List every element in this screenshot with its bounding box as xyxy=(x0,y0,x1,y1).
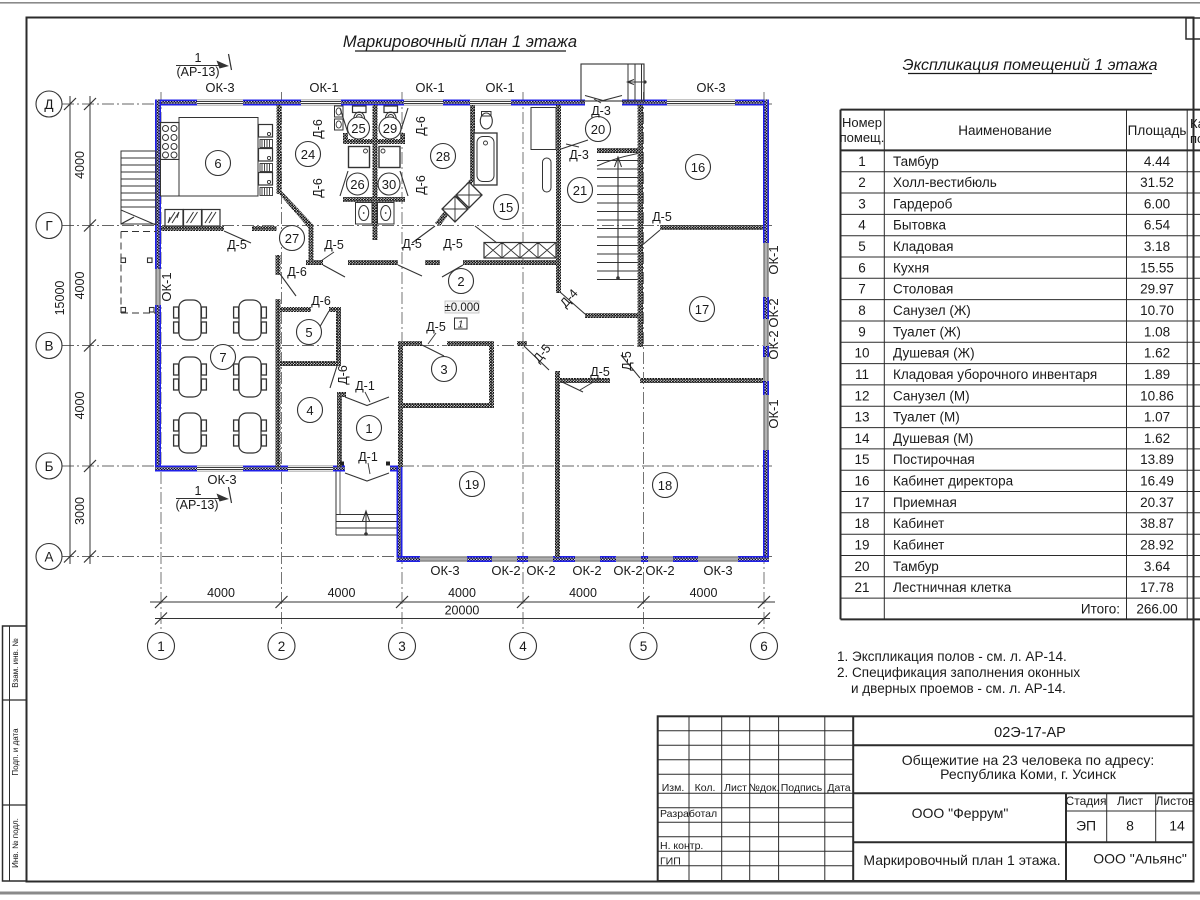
svg-text:ООО "Альянс": ООО "Альянс" xyxy=(1093,851,1187,867)
svg-text:ОК-1: ОК-1 xyxy=(766,245,781,274)
svg-text:ОК-2: ОК-2 xyxy=(645,563,674,578)
svg-text:4000: 4000 xyxy=(690,586,718,600)
svg-text:4000: 4000 xyxy=(73,151,87,179)
svg-text:16.49: 16.49 xyxy=(1140,474,1174,489)
svg-text:Тамбур: Тамбур xyxy=(893,154,939,169)
svg-text:13.89: 13.89 xyxy=(1140,452,1174,467)
svg-text:20.37: 20.37 xyxy=(1140,495,1174,510)
svg-text:ОК-2: ОК-2 xyxy=(491,563,520,578)
svg-text:8: 8 xyxy=(1126,818,1134,834)
svg-text:Кабинет: Кабинет xyxy=(893,538,944,553)
svg-text:4: 4 xyxy=(858,218,866,233)
svg-text:Итого:: Итого: xyxy=(1081,602,1120,617)
svg-text:2. Спецификация заполнения око: 2. Спецификация заполнения оконных xyxy=(837,665,1080,680)
svg-text:3.64: 3.64 xyxy=(1144,559,1171,574)
svg-text:ОК-2: ОК-2 xyxy=(526,563,555,578)
svg-text:Г: Г xyxy=(45,219,53,234)
svg-text:6: 6 xyxy=(214,156,221,171)
svg-text:помещ.: помещ. xyxy=(840,130,885,145)
svg-text:Д-5: Д-5 xyxy=(227,238,247,252)
svg-text:ОК-3: ОК-3 xyxy=(703,563,732,578)
svg-text:Д-3: Д-3 xyxy=(569,148,589,162)
svg-text:Подп. и дата: Подп. и дата xyxy=(11,728,20,776)
svg-text:20000: 20000 xyxy=(445,604,480,618)
svg-text:10.86: 10.86 xyxy=(1140,388,1174,403)
svg-text:15.55: 15.55 xyxy=(1140,260,1174,275)
svg-text:31.52: 31.52 xyxy=(1140,175,1174,190)
svg-text:13: 13 xyxy=(854,410,869,425)
svg-text:28: 28 xyxy=(436,149,450,164)
svg-text:1.08: 1.08 xyxy=(1144,324,1170,339)
svg-text:20: 20 xyxy=(591,122,605,137)
svg-text:3.18: 3.18 xyxy=(1144,239,1170,254)
svg-text:Стадия: Стадия xyxy=(1066,794,1107,808)
svg-text:Кабинет: Кабинет xyxy=(893,516,944,531)
svg-text:6: 6 xyxy=(858,260,866,275)
svg-text:ОК-3: ОК-3 xyxy=(696,80,725,95)
svg-text:11: 11 xyxy=(855,367,869,382)
svg-text:Кладовая уборочного инвентаря: Кладовая уборочного инвентаря xyxy=(893,367,1097,382)
svg-text:Д-5: Д-5 xyxy=(443,237,463,251)
svg-text:21: 21 xyxy=(573,183,587,198)
svg-text:Б: Б xyxy=(45,459,54,474)
svg-text:Листов: Листов xyxy=(1156,794,1195,808)
svg-text:2: 2 xyxy=(457,274,464,289)
svg-text:Экспликация помещений 1 этажа: Экспликация помещений 1 этажа xyxy=(903,57,1158,74)
svg-text:15000: 15000 xyxy=(53,281,67,316)
svg-text:А: А xyxy=(44,550,53,565)
svg-text:3: 3 xyxy=(858,196,866,211)
svg-text:29.97: 29.97 xyxy=(1140,282,1174,297)
svg-text:№док.: №док. xyxy=(749,782,780,794)
svg-text:21: 21 xyxy=(854,580,869,595)
svg-text:18: 18 xyxy=(854,516,869,531)
svg-text:Маркировочный план 1 этажа: Маркировочный план 1 этажа xyxy=(343,33,577,51)
svg-text:Лист: Лист xyxy=(724,782,747,794)
svg-text:1: 1 xyxy=(365,421,372,436)
svg-text:Взам. инв. №: Взам. инв. № xyxy=(11,638,20,688)
svg-text:1.62: 1.62 xyxy=(1144,431,1170,446)
svg-text:±0.000: ±0.000 xyxy=(444,302,479,314)
svg-text:Кол.: Кол. xyxy=(695,782,716,794)
svg-text:ОК-1: ОК-1 xyxy=(485,80,514,95)
svg-text:6: 6 xyxy=(760,639,768,654)
svg-text:ОК-2: ОК-2 xyxy=(613,563,642,578)
svg-text:14: 14 xyxy=(854,431,870,446)
svg-text:19: 19 xyxy=(465,477,479,492)
svg-text:1: 1 xyxy=(458,320,464,331)
svg-text:7: 7 xyxy=(219,350,226,365)
svg-text:Д-5: Д-5 xyxy=(324,238,344,252)
svg-text:Бытовка: Бытовка xyxy=(893,218,946,233)
svg-text:Д-6: Д-6 xyxy=(311,119,325,139)
svg-text:Санузел (М): Санузел (М) xyxy=(893,388,970,403)
svg-text:4000: 4000 xyxy=(207,586,235,600)
svg-text:30: 30 xyxy=(382,177,396,192)
svg-text:Санузел (Ж): Санузел (Ж) xyxy=(893,303,971,318)
svg-text:15: 15 xyxy=(854,452,869,467)
svg-text:266.00: 266.00 xyxy=(1136,602,1177,617)
svg-text:25: 25 xyxy=(351,121,365,136)
svg-text:(АР-13): (АР-13) xyxy=(176,65,219,79)
svg-text:14: 14 xyxy=(1169,818,1185,834)
svg-text:Д-6: Д-6 xyxy=(414,175,428,195)
svg-text:Инв. № подл.: Инв. № подл. xyxy=(11,818,20,868)
svg-text:ОК-3: ОК-3 xyxy=(207,472,236,487)
svg-text:5: 5 xyxy=(858,239,866,254)
svg-text:8: 8 xyxy=(858,303,866,318)
svg-text:Д-5: Д-5 xyxy=(402,237,422,251)
svg-text:29: 29 xyxy=(383,121,397,136)
svg-text:4: 4 xyxy=(519,639,527,654)
svg-text:17.78: 17.78 xyxy=(1140,580,1174,595)
svg-text:Столовая: Столовая xyxy=(893,282,953,297)
svg-text:Гардероб: Гардероб xyxy=(893,196,953,211)
svg-text:5: 5 xyxy=(640,639,648,654)
svg-text:по: по xyxy=(1190,131,1200,146)
svg-text:Холл-вестибюль: Холл-вестибюль xyxy=(893,175,997,190)
svg-text:Д-6: Д-6 xyxy=(311,294,331,308)
svg-text:20: 20 xyxy=(854,559,869,574)
svg-text:2: 2 xyxy=(858,175,866,190)
svg-text:В: В xyxy=(44,339,53,354)
svg-text:1: 1 xyxy=(157,639,165,654)
svg-text:и дверных проемов - см. л. АР-: и дверных проемов - см. л. АР-14. xyxy=(851,681,1066,696)
svg-text:Д-5: Д-5 xyxy=(426,320,446,334)
svg-text:Кухня: Кухня xyxy=(893,260,929,275)
svg-text:15: 15 xyxy=(499,200,513,215)
svg-text:1: 1 xyxy=(195,51,202,65)
svg-text:4000: 4000 xyxy=(73,272,87,300)
svg-text:Маркировочный план 1 этажа.: Маркировочный план 1 этажа. xyxy=(863,852,1060,868)
svg-text:Туалет (М): Туалет (М) xyxy=(893,410,960,425)
svg-text:28.92: 28.92 xyxy=(1140,538,1174,553)
svg-text:16: 16 xyxy=(854,474,869,489)
svg-text:Душевая (Ж): Душевая (Ж) xyxy=(893,346,975,361)
svg-text:17: 17 xyxy=(854,495,869,510)
svg-text:Тамбур: Тамбур xyxy=(893,559,939,574)
svg-text:Д-1: Д-1 xyxy=(358,450,378,464)
svg-text:19: 19 xyxy=(854,538,869,553)
svg-text:02Э-17-АР: 02Э-17-АР xyxy=(994,725,1066,741)
svg-text:Д-6: Д-6 xyxy=(414,116,428,136)
svg-text:Кабинет директора: Кабинет директора xyxy=(893,474,1014,489)
svg-text:Площадь: Площадь xyxy=(1128,123,1187,138)
svg-text:1.62: 1.62 xyxy=(1144,346,1170,361)
svg-text:Лестничная клетка: Лестничная клетка xyxy=(893,580,1012,595)
svg-text:ОК-2: ОК-2 xyxy=(572,563,601,578)
svg-text:ОК-1: ОК-1 xyxy=(415,80,444,95)
svg-text:10.70: 10.70 xyxy=(1140,303,1174,318)
svg-text:4000: 4000 xyxy=(73,392,87,420)
svg-text:10: 10 xyxy=(854,346,869,361)
svg-text:Подпись: Подпись xyxy=(781,782,823,794)
svg-text:12: 12 xyxy=(854,388,869,403)
svg-text:Д-1: Д-1 xyxy=(355,379,375,393)
svg-text:1: 1 xyxy=(858,154,866,169)
svg-text:1: 1 xyxy=(195,484,202,498)
svg-text:(АР-13): (АР-13) xyxy=(175,498,218,512)
svg-text:Приемная: Приемная xyxy=(893,495,957,510)
svg-text:Душевая (М): Душевая (М) xyxy=(893,431,973,446)
svg-text:ГИП: ГИП xyxy=(660,856,681,868)
svg-text:3: 3 xyxy=(440,362,447,377)
svg-text:17: 17 xyxy=(695,302,709,317)
svg-text:4000: 4000 xyxy=(328,586,356,600)
svg-text:ЭП: ЭП xyxy=(1076,818,1096,834)
svg-text:2: 2 xyxy=(278,639,286,654)
svg-text:ОК-2: ОК-2 xyxy=(766,298,781,327)
svg-text:ОК-1: ОК-1 xyxy=(766,399,781,428)
svg-text:ОК-2: ОК-2 xyxy=(766,330,781,359)
svg-text:ООО "Феррум": ООО "Феррум" xyxy=(912,805,1009,821)
svg-text:4000: 4000 xyxy=(569,586,597,600)
svg-text:Н. контр.: Н. контр. xyxy=(660,840,703,852)
svg-text:ОК-1: ОК-1 xyxy=(159,272,174,301)
svg-text:Наименование: Наименование xyxy=(958,123,1052,138)
svg-text:Разработал: Разработал xyxy=(660,808,717,820)
svg-text:7: 7 xyxy=(858,282,866,297)
svg-text:27: 27 xyxy=(285,231,299,246)
svg-text:1.07: 1.07 xyxy=(1144,410,1170,425)
svg-text:4.44: 4.44 xyxy=(1144,154,1171,169)
svg-text:Д-5: Д-5 xyxy=(590,365,610,379)
svg-text:18: 18 xyxy=(658,478,672,493)
svg-text:1.89: 1.89 xyxy=(1144,367,1170,382)
svg-text:ОК-1: ОК-1 xyxy=(309,80,338,95)
svg-text:Изм.: Изм. xyxy=(662,782,685,794)
svg-text:3000: 3000 xyxy=(73,497,87,525)
svg-text:Д-3: Д-3 xyxy=(591,104,611,118)
svg-text:Туалет (Ж): Туалет (Ж) xyxy=(893,324,961,339)
svg-text:Лист: Лист xyxy=(1117,794,1144,808)
svg-text:Д-6: Д-6 xyxy=(311,178,325,198)
svg-text:6.54: 6.54 xyxy=(1144,218,1171,233)
svg-text:Постирочная: Постирочная xyxy=(893,452,975,467)
svg-text:Республика Коми, г. Усинск: Республика Коми, г. Усинск xyxy=(940,766,1117,782)
svg-text:Д: Д xyxy=(44,97,53,112)
svg-text:26: 26 xyxy=(350,177,364,192)
svg-text:ОК-3: ОК-3 xyxy=(430,563,459,578)
svg-text:5: 5 xyxy=(305,325,312,340)
svg-text:16: 16 xyxy=(691,160,705,175)
svg-text:4000: 4000 xyxy=(448,586,476,600)
svg-text:1. Экспликация полов - см. л.: 1. Экспликация полов - см. л. АР-14. xyxy=(837,649,1067,664)
svg-text:ОК-3: ОК-3 xyxy=(205,80,234,95)
svg-text:Ка: Ка xyxy=(1190,116,1200,131)
svg-text:Кладовая: Кладовая xyxy=(893,239,953,254)
svg-text:9: 9 xyxy=(858,324,866,339)
svg-text:Номер: Номер xyxy=(842,115,882,130)
svg-text:4: 4 xyxy=(306,403,313,418)
svg-text:6.00: 6.00 xyxy=(1144,196,1170,211)
svg-text:Д-5: Д-5 xyxy=(652,210,672,224)
svg-text:Д-6: Д-6 xyxy=(287,265,307,279)
svg-text:Д-6: Д-6 xyxy=(336,365,350,385)
svg-text:3: 3 xyxy=(398,639,406,654)
svg-text:24: 24 xyxy=(301,147,315,162)
svg-text:Дата: Дата xyxy=(827,782,850,794)
svg-text:Д-5: Д-5 xyxy=(620,351,634,371)
svg-text:38.87: 38.87 xyxy=(1140,516,1174,531)
